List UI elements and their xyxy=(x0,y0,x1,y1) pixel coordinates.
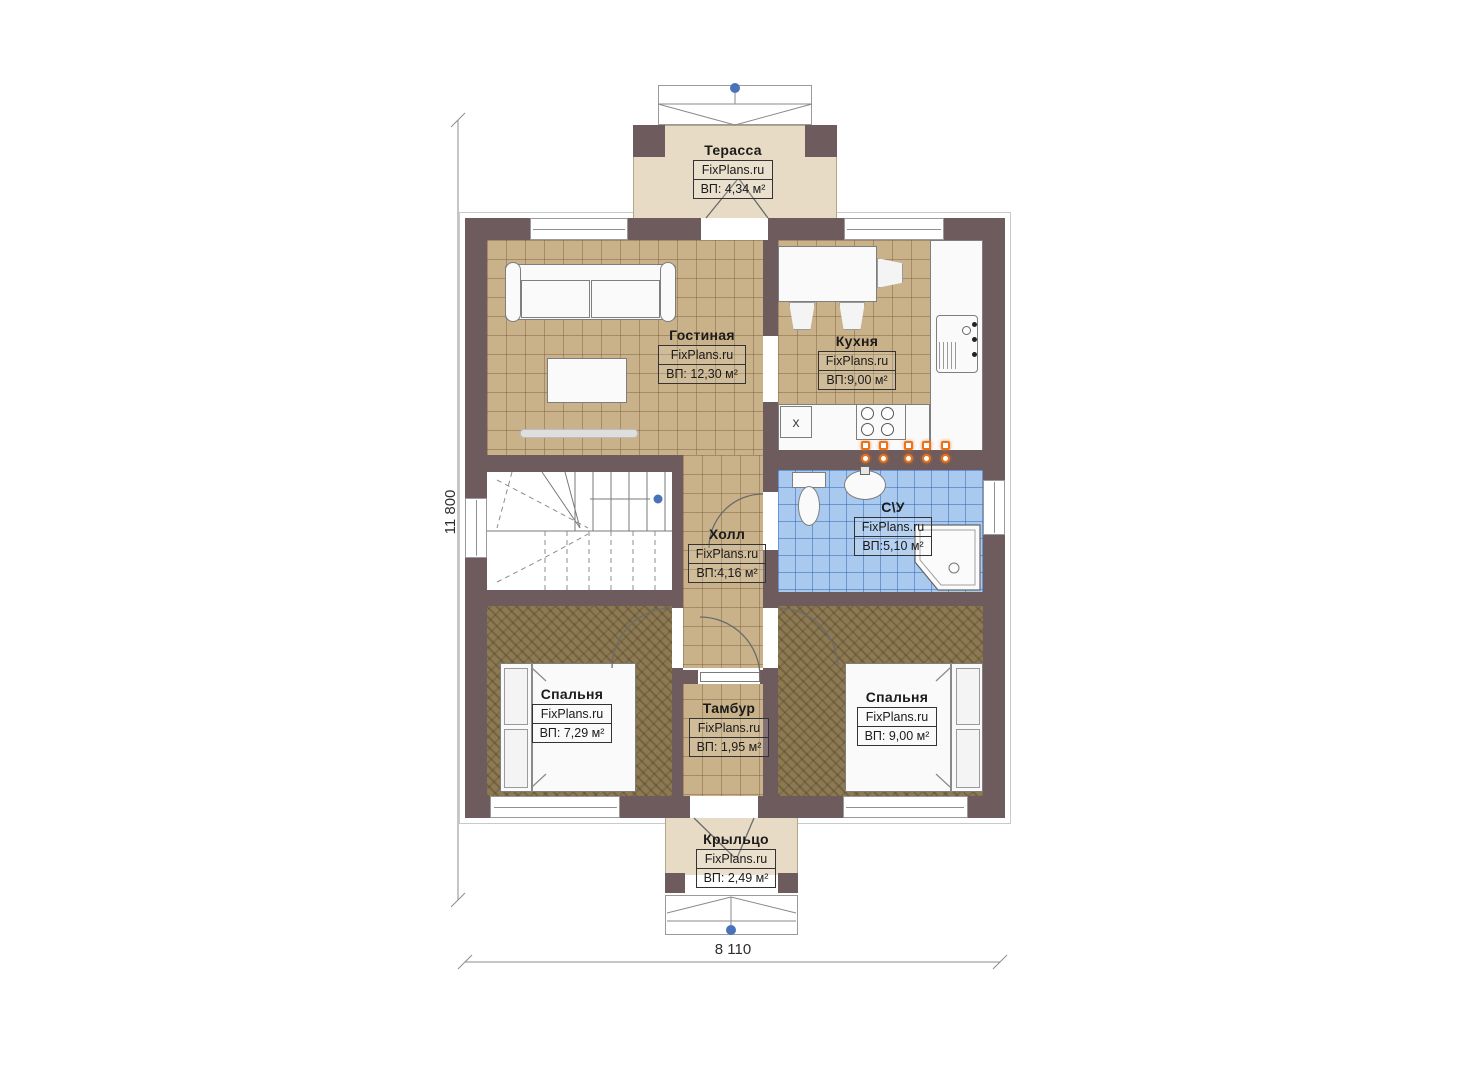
room-name: Тамбур xyxy=(703,700,756,716)
room-name: Терасса xyxy=(704,142,762,158)
outdoor-steps-lines xyxy=(658,90,812,925)
room-label-bedroom-right: Спальня FixPlans.ru ВП: 9,00 м² xyxy=(839,689,955,746)
room-info-box: FixPlans.ru ВП: 1,95 м² xyxy=(689,718,770,757)
watermark: FixPlans.ru xyxy=(858,708,937,726)
floor-plan-canvas: х xyxy=(0,0,1474,1080)
room-info-box: FixPlans.ru ВП: 9,00 м² xyxy=(857,707,938,746)
entry-marker-top xyxy=(730,83,740,93)
room-label-bathroom: С\У FixPlans.ru ВП:5,10 м² xyxy=(835,499,951,556)
room-name: Спальня xyxy=(866,689,929,705)
watermark: FixPlans.ru xyxy=(533,705,612,723)
room-name: Спальня xyxy=(541,686,604,702)
watermark: FixPlans.ru xyxy=(819,352,896,370)
dimension-height: 11 800 xyxy=(442,474,460,550)
room-label-porch: Крыльцо FixPlans.ru ВП: 2,49 м² xyxy=(678,831,794,888)
room-name: С\У xyxy=(881,499,905,515)
room-label-tambur: Тамбур FixPlans.ru ВП: 1,95 м² xyxy=(671,700,787,757)
watermark: FixPlans.ru xyxy=(689,545,766,563)
room-area: ВП: 2,49 м² xyxy=(697,868,776,887)
room-name: Кухня xyxy=(836,333,878,349)
watermark: FixPlans.ru xyxy=(855,518,932,536)
room-name: Гостиная xyxy=(669,327,735,343)
room-label-hall: Холл FixPlans.ru ВП:4,16 м² xyxy=(669,526,785,583)
room-label-living: Гостиная FixPlans.ru ВП: 12,30 м² xyxy=(644,327,760,384)
room-label-terrace: Терасса FixPlans.ru ВП: 4,34 м² xyxy=(675,142,791,199)
room-area: ВП:5,10 м² xyxy=(855,536,932,555)
room-info-box: FixPlans.ru ВП: 2,49 м² xyxy=(696,849,777,888)
room-label-bedroom-left: Спальня FixPlans.ru ВП: 7,29 м² xyxy=(514,686,630,743)
room-area: ВП: 9,00 м² xyxy=(858,726,937,745)
stair-direction-dot xyxy=(654,495,663,504)
watermark: FixPlans.ru xyxy=(659,346,745,364)
room-area: ВП: 12,30 м² xyxy=(659,364,745,383)
room-area: ВП: 7,29 м² xyxy=(533,723,612,742)
room-area: ВП:9,00 м² xyxy=(819,370,896,389)
room-info-box: FixPlans.ru ВП:9,00 м² xyxy=(818,351,897,390)
watermark: FixPlans.ru xyxy=(690,719,769,737)
room-label-kitchen: Кухня FixPlans.ru ВП:9,00 м² xyxy=(799,333,915,390)
room-area: ВП: 1,95 м² xyxy=(690,737,769,756)
room-info-box: FixPlans.ru ВП: 4,34 м² xyxy=(693,160,774,199)
entry-marker-bottom xyxy=(726,925,736,935)
room-info-box: FixPlans.ru ВП: 12,30 м² xyxy=(658,345,746,384)
room-name: Крыльцо xyxy=(703,831,769,847)
watermark: FixPlans.ru xyxy=(694,161,773,179)
stairs-icon xyxy=(487,472,672,590)
room-area: ВП: 4,34 м² xyxy=(694,179,773,198)
room-name: Холл xyxy=(709,526,745,542)
room-info-box: FixPlans.ru ВП:4,16 м² xyxy=(688,544,767,583)
watermark: FixPlans.ru xyxy=(697,850,776,868)
room-info-box: FixPlans.ru ВП:5,10 м² xyxy=(854,517,933,556)
dimension-width: 8 110 xyxy=(703,941,763,959)
room-info-box: FixPlans.ru ВП: 7,29 м² xyxy=(532,704,613,743)
room-area: ВП:4,16 м² xyxy=(689,563,766,582)
